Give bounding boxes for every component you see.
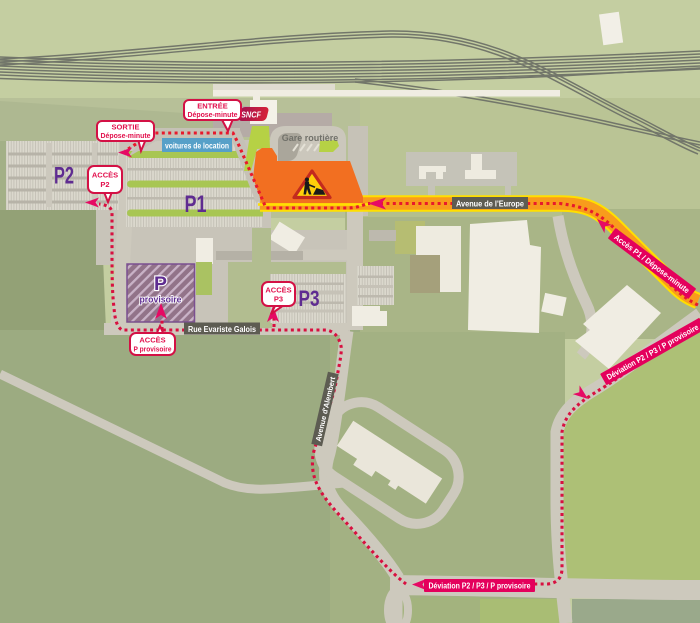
svg-text:ACCÈS: ACCÈS [265,286,291,295]
svg-text:SNCF: SNCF [241,110,262,120]
svg-text:Déviation P2 / P3 / P provisoi: Déviation P2 / P3 / P provisoire [429,582,531,591]
svg-text:provisoire: provisoire [140,295,182,306]
svg-text:P2: P2 [54,163,74,190]
svg-text:P provisoire: P provisoire [134,345,172,354]
svg-text:ACCÈS: ACCÈS [92,171,118,180]
svg-text:P: P [154,274,167,295]
svg-text:Avenue de l'Europe: Avenue de l'Europe [456,200,524,209]
svg-text:P1: P1 [185,191,207,218]
svg-text:Dépose-minute: Dépose-minute [101,131,151,140]
svg-text:Gare routière: Gare routière [282,133,339,143]
svg-text:P3: P3 [299,286,320,311]
svg-text:Rue Evariste Galois: Rue Evariste Galois [188,325,256,334]
svg-text:voitures de location: voitures de location [165,142,229,151]
svg-text:Dépose-minute: Dépose-minute [188,110,238,119]
svg-text:P2: P2 [100,180,109,189]
svg-text:P3: P3 [274,295,283,304]
svg-text:ACCÈS: ACCÈS [139,336,165,345]
